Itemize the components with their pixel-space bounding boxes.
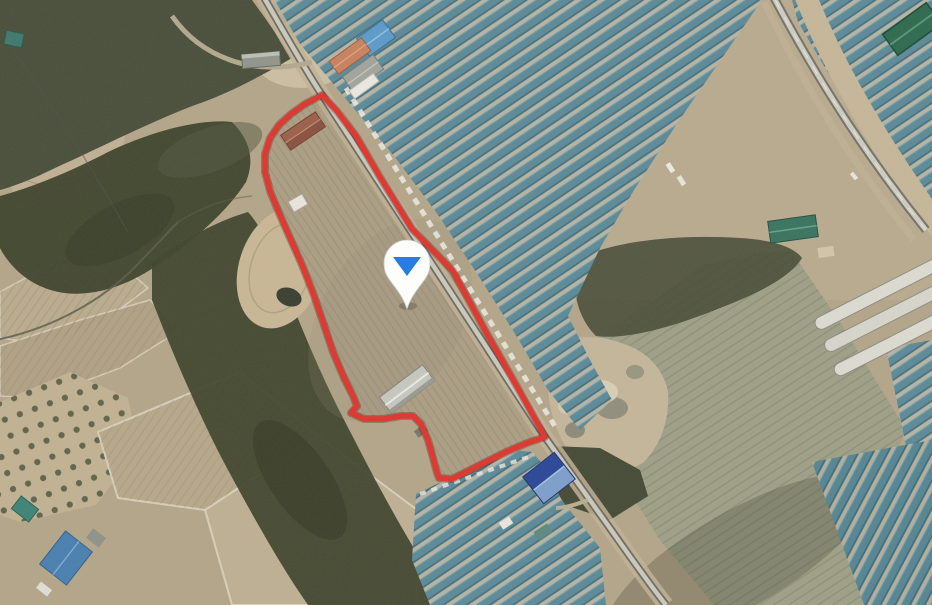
satellite-map-viewport[interactable] xyxy=(0,0,932,605)
satellite-imagery-canvas xyxy=(0,0,932,605)
